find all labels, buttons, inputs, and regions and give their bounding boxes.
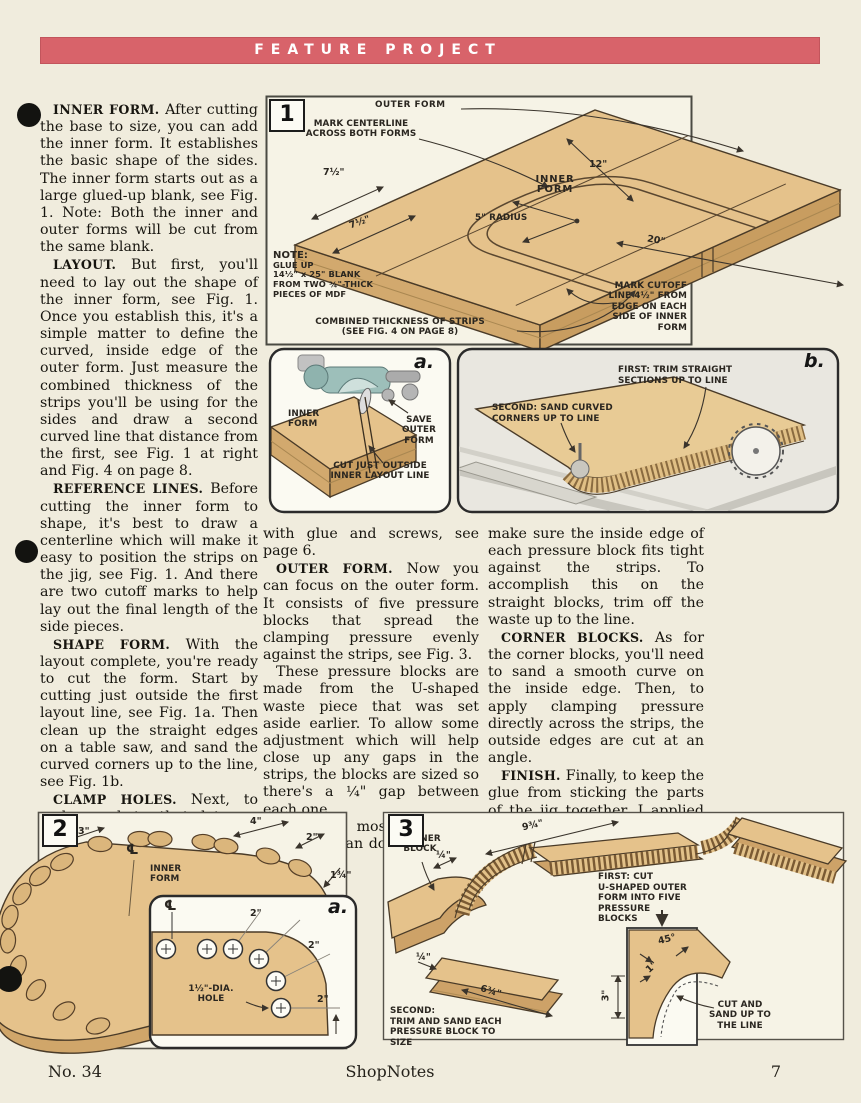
paragraph: INNER FORM.After cutting the base to siz… [40,101,258,256]
label-cut-outside: CUT JUST OUTSIDE INNER LAYOUT LINE [318,461,442,482]
dim-2c: 2" [317,994,329,1005]
label-inner-form: INNER FORM [288,409,319,430]
dim-7-half-a: 7½" [323,167,344,178]
figure-1a-letter: a. [414,351,434,373]
dim-3-inch: 3" [600,990,611,1002]
label-inner-form: INNER FORM [150,864,181,885]
figure-2-number: 2 [42,814,78,847]
paragraph: SHAPE FORM.With the layout complete, you… [40,636,258,791]
label-first-cut: FIRST: CUT U-SHAPED OUTER FORM INTO FIVE… [598,862,690,924]
figure-3-number: 3 [388,814,424,847]
label-second-trim: SECOND:TRIM AND SAND EACH PRESSURE BLOCK… [390,996,512,1048]
dim-12: 12" [589,159,607,170]
paragraph: CORNER BLOCKS.As for the corner blocks, … [488,629,704,767]
figure-1a: a. INNER FORM SAVE OUTER FORM CUT JUST O… [268,347,452,514]
label-note: NOTE:GLUE UP 14½" x 25" BLANK FROM TWO ¾… [273,241,379,300]
dim-2: 2" [306,832,318,843]
dim-3: 3" [78,826,90,837]
banner-title: FEATURE PROJECT [254,42,502,58]
paragraph: OUTER FORM.Now you can focus on the oute… [263,560,479,664]
paragraph: These pressure blocks are made from the … [263,664,479,818]
figure-1b-letter: b. [804,350,825,372]
centerline-symbol: ℄ [164,898,177,914]
figure-1: 1 OUTER FORM MARK CENTERLINE ACROSS BOTH… [265,95,850,350]
label-mark-centerline: MARK CENTERLINE ACROSS BOTH FORMS [303,119,419,140]
section-banner: FEATURE PROJECT [40,37,820,64]
dim-4: 4" [250,816,262,827]
figure-2: 2 3" 4" 2" 1¾" ℄ INNER FORM a. ℄ 2" 2" 2… [0,808,372,1060]
paragraph: with glue and screws, see page 6. [263,526,479,560]
paragraph: make sure the inside edge of each pressu… [488,526,704,629]
label-cut-and-sand: CUT AND SAND UP TO THE LINE [696,1000,784,1031]
label-save-outer-form: SAVE OUTER FORM [396,415,442,446]
label-first-trim: FIRST: TRIM STRAIGHT SECTIONS UP TO LINE [618,355,758,386]
dim-quarter-b: ¼" [416,952,431,963]
footer-issue: No. 34 [48,1062,102,1081]
column-right: make sure the inside edge of each pressu… [488,526,704,854]
dim-2b: 2" [308,940,320,951]
punch-dot [17,103,41,127]
centerline-symbol: ℄ [126,842,139,858]
paragraph: LAYOUT.But first, you'll need to lay out… [40,256,258,480]
footer-page-number: 7 [756,1062,796,1081]
column-left: INNER FORM.After cutting the base to siz… [40,101,258,912]
label-mark-cutoff: MARK CUTOFF LINE 4½" FROM EDGE ON EACH S… [587,281,687,333]
figure-1-number: 1 [269,99,305,132]
dim-1-3-4: 1¾" [330,870,351,881]
label-second-sand: SECOND: SAND CURVED CORNERS UP TO LINE [492,393,644,424]
label-inner-form: INNER FORM [533,175,577,196]
magazine-page: FEATURE PROJECT INNER FORM.After cutting… [0,0,861,1103]
label-5-radius: 5" RADIUS [475,213,527,223]
footer-magazine: ShopNotes [310,1062,470,1081]
figure-1b: b. FIRST: TRIM STRAIGHT SECTIONS UP TO L… [456,347,840,514]
label-combined-thickness: COMBINED THICKNESS OF STRIPS (SEE FIG. 4… [281,317,519,338]
paragraph: REFERENCE LINES.Before cutting the inner… [40,480,258,635]
label-hole-dia: 1½"-DIA. HOLE [174,984,248,1005]
punch-dot [15,540,38,563]
figure-3: 3 CORNER BLOCK ¼" 9¾" FIRST: CUT U-SHAPE… [378,806,861,1062]
figure-2a-letter: a. [328,896,348,918]
dim-quarter-a: ¼" [436,850,451,861]
label-outer-form: OUTER FORM [375,100,445,110]
dim-2a: 2" [250,908,262,919]
